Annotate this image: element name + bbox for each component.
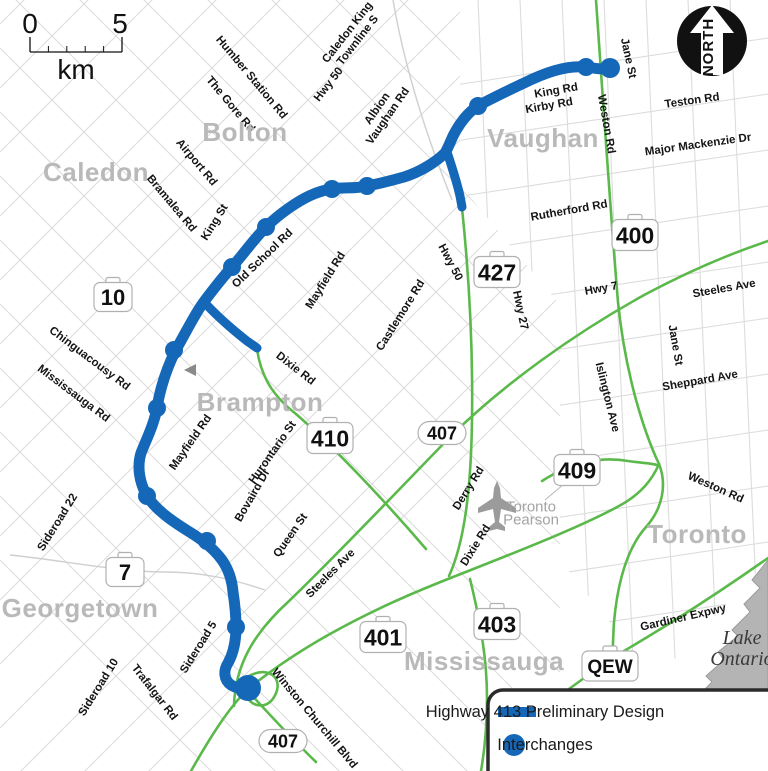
- road-label: Hurontario St: [247, 419, 299, 486]
- svg-text:407: 407: [268, 731, 298, 751]
- highway-shield-410: 410: [307, 418, 353, 454]
- minor-road: [455, 430, 768, 477]
- interchange-dot: [198, 532, 216, 550]
- road-label: Hwy 7: [584, 280, 619, 298]
- interchange-dot: [323, 180, 341, 198]
- highway-shield-400: 400: [612, 215, 658, 251]
- city-label: Toronto: [647, 519, 747, 549]
- road-label: Hwy 27: [510, 290, 530, 331]
- svg-text:409: 409: [558, 457, 596, 483]
- interchange-dot: [138, 487, 156, 505]
- minor-road: [0, 0, 216, 771]
- interchange-dot: [165, 341, 183, 359]
- highway-shield-401: 401: [360, 617, 406, 653]
- svg-text:403: 403: [478, 611, 516, 637]
- interchange-dot: [469, 97, 487, 115]
- highway-shields: 400427104104074097401403QEW407: [94, 215, 658, 753]
- highway-413-map: Humber Station RdThe Gore RdCaledon King…: [0, 0, 768, 771]
- svg-text:400: 400: [616, 222, 654, 248]
- highway-shield-427: 427: [474, 252, 520, 288]
- minor-road-grid-east: [455, 0, 768, 680]
- legend-route-label: Highway 413 Preliminary Design: [426, 703, 664, 721]
- airport-label: TorontoPearson: [503, 499, 559, 529]
- road-label: Hwy 50: [312, 65, 346, 104]
- road-label: Sideroad 22: [35, 492, 80, 554]
- road-label: Sheppard Ave: [661, 368, 738, 393]
- city-label: Caledon: [43, 157, 149, 187]
- minor-road: [455, 150, 768, 197]
- interchange-dot: [600, 58, 620, 78]
- highway-413-route: [139, 67, 610, 689]
- road-label: Castlemore Rd: [374, 278, 427, 353]
- highway-410-connector-spur: [204, 302, 257, 348]
- road-label: Sideroad 5: [178, 619, 220, 676]
- road-label: Islington Ave: [593, 361, 622, 433]
- road-label: Steeles Ave: [304, 547, 358, 601]
- minor-road: [0, 0, 340, 771]
- svg-text:QEW: QEW: [587, 657, 632, 678]
- city-label: Georgetown: [2, 593, 159, 623]
- road-label: Mayfield Rd: [304, 250, 348, 311]
- city-label: Vaughan: [487, 123, 599, 153]
- highway-427-connector-spur: [447, 152, 462, 207]
- svg-text:410: 410: [311, 425, 349, 451]
- interchange-markers: [138, 58, 620, 701]
- city-label: Brampton: [197, 387, 324, 417]
- road-label: Dixie Rd: [274, 350, 318, 388]
- road-label: Caledon KingTownline S: [320, 0, 385, 74]
- map-canvas: Humber Station RdThe Gore RdCaledon King…: [0, 0, 768, 771]
- highway-shield-407: 407: [259, 730, 307, 753]
- highway-shield-10: 10: [94, 278, 132, 312]
- city-label: Bolton: [202, 117, 287, 147]
- map-labels: Humber Station RdThe Gore RdCaledon King…: [2, 0, 768, 771]
- road-label: Mayfield Rd: [167, 413, 214, 473]
- road-label: Steeles Ave: [692, 278, 757, 301]
- city-label: Mississauga: [404, 646, 564, 676]
- interchange-dot: [227, 618, 245, 636]
- road-label: Teston Rd: [664, 91, 721, 111]
- interchange-dot: [358, 177, 376, 195]
- scale-unit-label: km: [57, 54, 94, 85]
- highway-413-mainline: [139, 67, 610, 689]
- highway-shield-7: 7: [106, 553, 144, 587]
- legend: Highway 413 Preliminary Design Interchan…: [426, 690, 768, 771]
- minor-road: [0, 0, 88, 771]
- svg-text:10: 10: [101, 285, 125, 310]
- road-label: Jane St: [618, 37, 638, 80]
- highway-shield-407: 407: [418, 422, 466, 445]
- interchange-dot: [257, 218, 275, 236]
- scale-bar: 0 5 km: [22, 8, 128, 85]
- road-label: Kirby Rd: [525, 96, 574, 116]
- svg-text:401: 401: [364, 624, 403, 650]
- highway-shield-403: 403: [474, 604, 520, 640]
- highway-shield-qew: QEW: [582, 646, 638, 681]
- road-label: Bramalea Rd: [144, 173, 198, 235]
- road-label: Humber Station Rd: [213, 34, 289, 121]
- road-label: Rutherford Rd: [530, 198, 609, 223]
- interchange-dot: [235, 675, 261, 701]
- minor-road: [455, 542, 768, 589]
- road-label: Gardiner Expwy: [639, 602, 728, 634]
- scale-end-label: 5: [112, 8, 128, 39]
- svg-text:427: 427: [478, 259, 516, 285]
- road-label: Weston Rd: [686, 470, 746, 505]
- lake-ontario-label: LakeOntario: [710, 627, 768, 670]
- interchange-dot: [148, 399, 166, 417]
- svg-text:407: 407: [427, 423, 457, 443]
- road-label: Sideroad 10: [76, 657, 121, 719]
- north-label: NORTH: [700, 18, 717, 76]
- north-arrow: NORTH: [677, 5, 747, 76]
- road-label: Jane St: [666, 324, 685, 367]
- road-label: King St: [199, 202, 231, 243]
- interchange-dot: [577, 58, 595, 76]
- scale-start-label: 0: [22, 8, 38, 39]
- road-label: Hwy 50: [436, 242, 465, 283]
- road-label: Queen St: [271, 511, 310, 559]
- svg-text:7: 7: [119, 560, 131, 585]
- highway-shield-409: 409: [554, 450, 600, 486]
- legend-interchange-label: Interchanges: [497, 736, 592, 754]
